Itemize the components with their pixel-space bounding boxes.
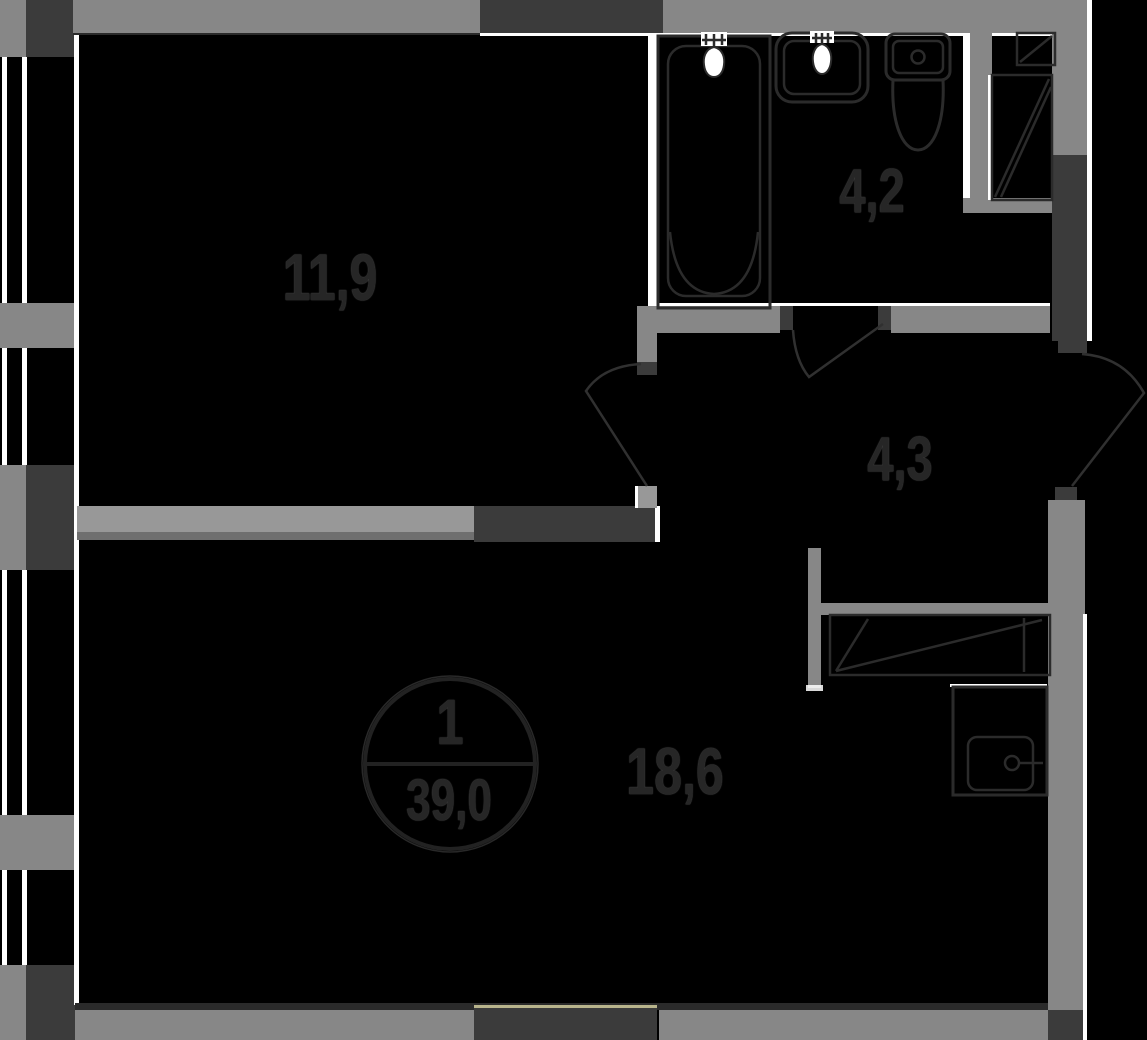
wardrobe-icon — [830, 615, 1050, 675]
room-area-label-bathroom: 4,2 — [839, 161, 905, 223]
toilet-icon — [886, 34, 950, 150]
room-area-label-11-9: 11,9 — [283, 244, 378, 310]
sink-icon — [776, 31, 868, 102]
bathtub-icon — [658, 32, 770, 308]
unit-number-label: 1 — [436, 690, 463, 754]
washing-machine-icon — [950, 684, 1047, 795]
room-area-label-living: 18,6 — [626, 738, 724, 804]
walls — [0, 0, 1092, 1040]
vent-duct-icon — [988, 33, 1055, 200]
total-area-label: 39,0 — [406, 772, 492, 830]
floor-plan: 11,9 4,2 4,3 18,6 1 39,0 — [0, 0, 1147, 1040]
room-area-label-hallway: 4,3 — [867, 429, 933, 491]
floor-plan-drawing — [0, 0, 1147, 1040]
